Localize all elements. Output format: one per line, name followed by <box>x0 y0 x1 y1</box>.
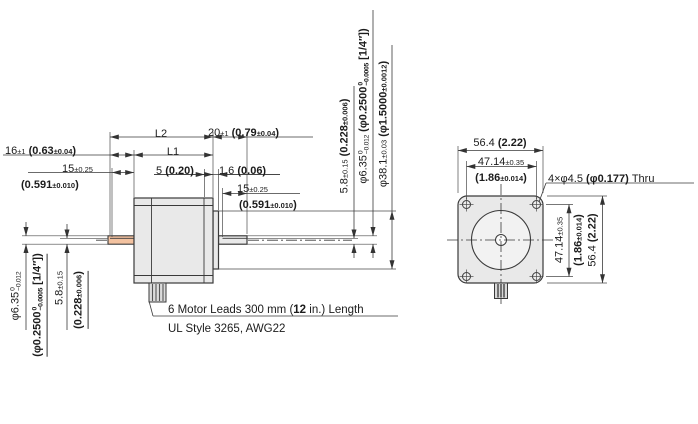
dim-shaft-flat-left-metric: 5.8±0.15 <box>51 271 68 305</box>
motor-dimension-drawing: L2 20±1 (0.79±0.04) L1 16±1 (0.63±0.04) … <box>0 0 698 424</box>
note-ul-style: UL Style 3265, AWG22 <box>168 319 285 337</box>
dim-front-shaft-length: 20±1 (0.79±0.04) <box>208 123 279 141</box>
dim-bolt-cc-top-metric: 47.14±0.35 <box>478 152 524 170</box>
dim-pilot-dia-right: φ38.1±0.03 (φ1.5000±0.0012) <box>375 61 392 187</box>
note-motor-leads: 6 Motor Leads 300 mm (12 in.) Length <box>168 300 364 318</box>
rear-shaft <box>108 236 134 244</box>
dim-shaft-dia-left-imperial: (φ0.25000−0.0005 [1/4″]) <box>29 253 48 356</box>
holes-leader-line <box>539 183 546 202</box>
dim-shaft-dia-left-metric: φ6.350−0.012 <box>7 272 24 321</box>
dim-l1-label: L1 <box>167 142 179 160</box>
motor-leads-bundle <box>149 283 166 302</box>
dim-shaft-flat-right: 5.8±0.15 (0.228±0.006) <box>336 99 353 194</box>
pilot-boss <box>213 211 219 269</box>
dim-rear-shaft-length: 16±1 (0.63±0.04) <box>5 141 76 159</box>
dim-front-flat-imperial: (0.591±0.010) <box>239 195 297 213</box>
dim-bolt-cc-top-imperial: (1.86±0.014) <box>475 168 527 186</box>
dim-front-flat-metric: 15±0.25 <box>237 179 268 197</box>
dim-shaft-dia-right: φ6.350−0.012 (φ0.25000−0.0005 [1/4″]) <box>355 28 372 183</box>
dim-bolt-cc-right-metric: 47.14±0.35 <box>551 217 568 263</box>
front-shaft <box>219 236 248 244</box>
dim-rear-flat-imperial: (0.591±0.010) <box>21 175 79 193</box>
dim-rear-flat-metric: 15±0.25 <box>62 159 93 177</box>
dim-frame-width-top: 56.4 (2.22) <box>473 133 526 151</box>
motor-body-side <box>134 198 213 283</box>
dim-shaft-flat-left-imperial: (0.228±0.006) <box>70 271 89 329</box>
dim-front-step: 5 (0.20) <box>156 161 194 179</box>
dim-pilot-thickness: 1.6 (0.06) <box>219 161 266 179</box>
note-mounting-holes: 4×φ4.5 (φ0.177) Thru <box>548 169 654 187</box>
dim-frame-height-right: 56.4 (2.22) <box>584 213 601 266</box>
leads-leader-line <box>149 301 153 316</box>
front-shaft-end <box>495 283 508 299</box>
dim-l2-label: L2 <box>155 124 167 142</box>
drawing-geometry <box>0 0 698 424</box>
